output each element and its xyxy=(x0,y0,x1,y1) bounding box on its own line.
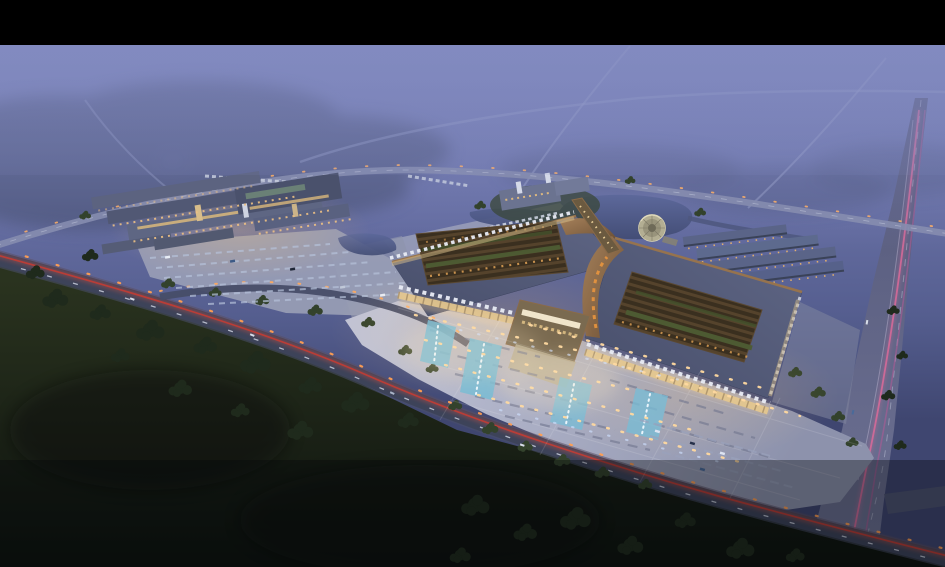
plaza-light-pool xyxy=(400,320,540,380)
bottom-vignette xyxy=(0,460,945,567)
architectural-rendering-canvas xyxy=(0,0,945,567)
plaza-center xyxy=(648,224,656,232)
upper-haze xyxy=(0,45,945,175)
letterbox-top xyxy=(0,0,945,45)
rendering-scene xyxy=(0,0,945,567)
